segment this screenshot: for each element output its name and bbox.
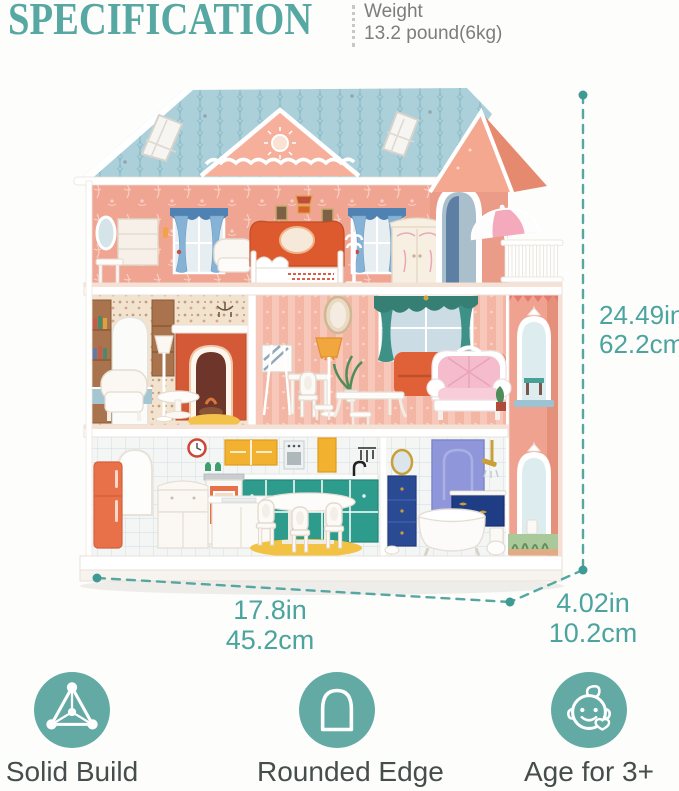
bottom-floor: [90, 437, 506, 558]
height-dimension: 24.49in 62.2cm: [599, 301, 679, 358]
dollhouse-product-image: [55, 80, 570, 600]
width-dimension: 17.8in 45.2cm: [200, 596, 340, 655]
living-window: [374, 296, 478, 363]
skylight: [142, 115, 182, 161]
tower-gable: [430, 112, 547, 192]
height-inches: 24.49in: [599, 301, 679, 330]
weight-label: Weight: [364, 1, 502, 23]
depth-cm: 10.2cm: [533, 619, 653, 649]
balcony-umbrella: [468, 201, 544, 282]
bookshelf: [91, 300, 111, 423]
baby-face-icon: [550, 671, 628, 749]
feature-rounded-edge: Rounded Edge: [257, 671, 417, 788]
middle-floor: [90, 295, 511, 428]
attic-floor: [90, 171, 508, 288]
bath-vanity: [388, 450, 416, 546]
width-inches: 17.8in: [200, 596, 340, 626]
fridge: [94, 462, 122, 548]
feature-age: Age for 3+: [509, 671, 669, 788]
tower: [504, 293, 563, 559]
depth-dimension: 4.02in 10.2cm: [533, 589, 653, 648]
front-gable: [201, 110, 359, 176]
kitchen-hutch: [158, 481, 208, 548]
roof: [74, 88, 547, 192]
feature-label: Solid Build: [0, 756, 152, 788]
feature-solid-build: Solid Build: [0, 671, 152, 788]
tower-garden-band: [508, 534, 558, 555]
skylight: [383, 112, 418, 156]
page-title: SPECIFICATION: [8, 0, 312, 45]
balcony: [468, 201, 563, 282]
feature-label: Rounded Edge: [257, 756, 417, 788]
floor-slabs: [80, 181, 562, 581]
specification-page: SPECIFICATION Weight 13.2 pound(6kg): [0, 0, 679, 791]
weight-info: Weight 13.2 pound(6kg): [364, 1, 502, 45]
depth-inches: 4.02in: [533, 589, 653, 619]
weight-value: 13.2 pound(6kg): [364, 23, 502, 45]
feature-label: Age for 3+: [509, 756, 669, 788]
header-divider: [352, 5, 355, 47]
fireplace: [172, 325, 250, 428]
arch-icon: [298, 671, 376, 749]
width-cm: 45.2cm: [200, 626, 340, 656]
triangle-structure-icon: [33, 671, 111, 749]
bathtub: [419, 509, 485, 556]
ground-shadow: [80, 577, 564, 595]
height-cm: 62.2cm: [599, 330, 679, 359]
pink-couch: [427, 348, 511, 421]
